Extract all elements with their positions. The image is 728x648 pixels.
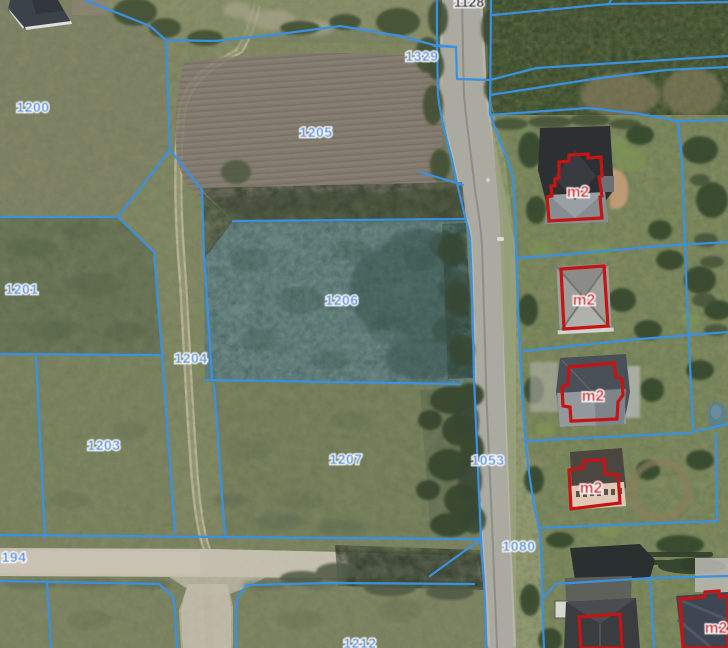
svg-text:m2: m2 bbox=[582, 388, 604, 405]
svg-text:1329: 1329 bbox=[405, 48, 438, 64]
svg-text:1203: 1203 bbox=[87, 437, 120, 453]
svg-text:m2: m2 bbox=[705, 620, 727, 637]
svg-text:194: 194 bbox=[2, 549, 27, 565]
svg-text:1200: 1200 bbox=[16, 99, 49, 115]
svg-text:1053: 1053 bbox=[471, 452, 504, 468]
svg-text:1205: 1205 bbox=[299, 124, 332, 140]
svg-text:1212: 1212 bbox=[343, 635, 376, 648]
svg-text:m2: m2 bbox=[573, 292, 595, 309]
svg-text:1128: 1128 bbox=[454, 0, 485, 10]
svg-text:m2: m2 bbox=[567, 184, 589, 201]
svg-text:1080: 1080 bbox=[502, 538, 535, 554]
svg-text:m2: m2 bbox=[580, 480, 602, 497]
svg-text:1204: 1204 bbox=[174, 350, 207, 366]
svg-text:1207: 1207 bbox=[329, 451, 362, 467]
svg-text:1201: 1201 bbox=[5, 281, 38, 297]
svg-text:1206: 1206 bbox=[325, 292, 358, 308]
